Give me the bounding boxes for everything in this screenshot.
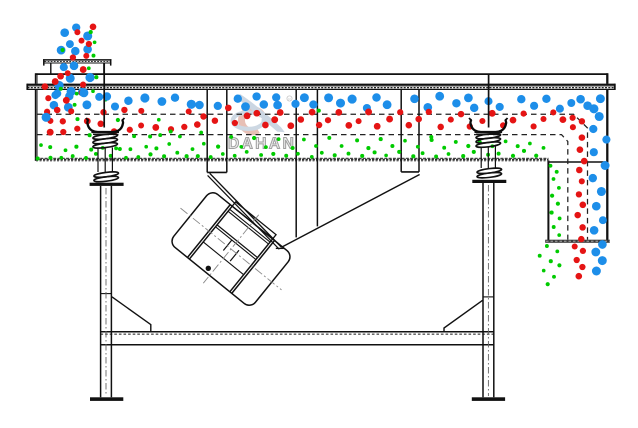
svg-text:R: R	[288, 97, 291, 101]
svg-text:DAHAN: DAHAN	[228, 136, 296, 153]
